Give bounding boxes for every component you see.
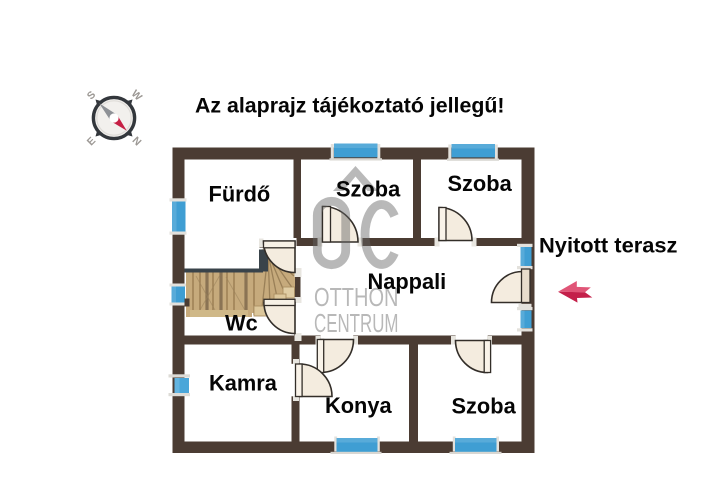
svg-text:Szoba: Szoba bbox=[336, 177, 401, 202]
svg-text:Nappali: Nappali bbox=[368, 269, 447, 294]
svg-text:CENTRUM: CENTRUM bbox=[314, 310, 399, 338]
svg-text:Kamra: Kamra bbox=[209, 371, 278, 396]
svg-text:Szoba: Szoba bbox=[452, 394, 517, 419]
svg-text:Wc: Wc bbox=[225, 311, 258, 336]
svg-text:Az alaprajz tájékoztató jelleg: Az alaprajz tájékoztató jellegű! bbox=[195, 95, 505, 118]
svg-text:Fürdő: Fürdő bbox=[209, 182, 271, 207]
svg-text:Konya: Konya bbox=[325, 393, 392, 418]
svg-text:Szoba: Szoba bbox=[448, 171, 513, 196]
svg-text:Nyitott terasz: Nyitott terasz bbox=[539, 234, 678, 258]
